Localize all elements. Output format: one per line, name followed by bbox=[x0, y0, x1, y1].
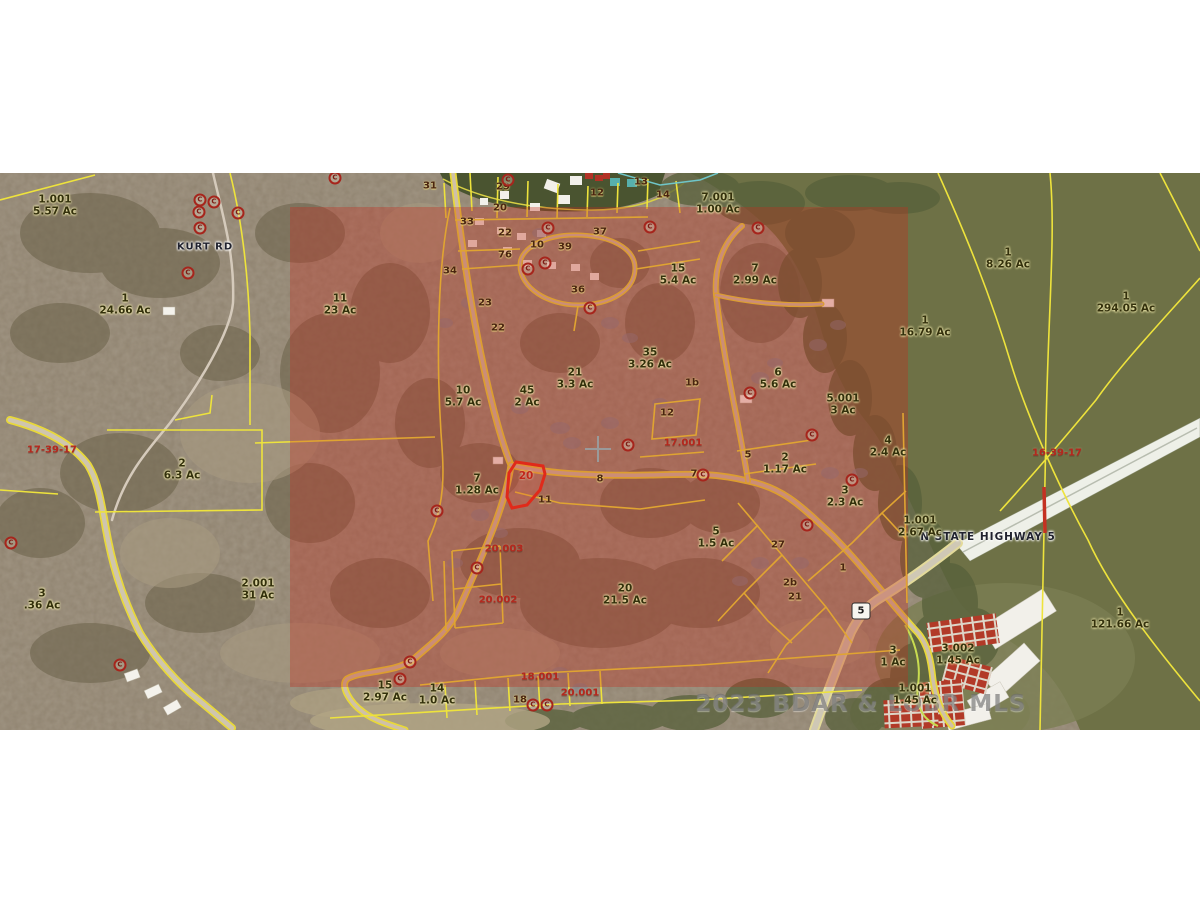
utility-marker-icon: C bbox=[539, 257, 552, 270]
parcel-label: 72.99 Ac bbox=[733, 264, 777, 287]
utility-marker-icon: C bbox=[744, 387, 757, 400]
parcel-label: 2.00131 Ac bbox=[241, 579, 274, 602]
parcel-label: 116.79 Ac bbox=[899, 316, 950, 339]
survey-label: 18.001 bbox=[521, 672, 560, 683]
mls-watermark: 2023 BDAR & LOBR MLS bbox=[696, 691, 1027, 717]
lot-number: 23 bbox=[478, 298, 492, 309]
survey-label: 20.002 bbox=[479, 595, 518, 606]
utility-marker-icon: C bbox=[232, 207, 245, 220]
parcel-label: 32.3 Ac bbox=[827, 486, 864, 509]
utility-marker-icon: C bbox=[194, 222, 207, 235]
parcel-label: 21.17 Ac bbox=[763, 453, 807, 476]
survey-label: 17-39-17 bbox=[27, 445, 77, 456]
parcel-label: 3.0021.45 Ac bbox=[936, 644, 980, 667]
utility-marker-icon: C bbox=[541, 699, 554, 712]
utility-marker-icon: C bbox=[114, 659, 127, 672]
utility-marker-icon: C bbox=[329, 173, 342, 185]
utility-marker-icon: C bbox=[644, 221, 657, 234]
lot-number: 8 bbox=[597, 474, 604, 485]
utility-marker-icon: C bbox=[584, 302, 597, 315]
lot-number: 13 bbox=[634, 177, 648, 188]
lot-number: 20 bbox=[493, 203, 507, 214]
utility-marker-icon: C bbox=[846, 474, 859, 487]
lot-number: 22 bbox=[491, 323, 505, 334]
parcel-label: 452 Ac bbox=[514, 386, 539, 409]
utility-marker-icon: C bbox=[471, 562, 484, 575]
lot-number: 31 bbox=[423, 181, 437, 192]
parcel-label: 2021.5 Ac bbox=[603, 584, 647, 607]
parcel-label: 65.6 Ac bbox=[760, 368, 797, 391]
utility-marker-icon: C bbox=[622, 439, 635, 452]
lot-number: 18 bbox=[513, 695, 527, 706]
utility-marker-icon: C bbox=[208, 196, 221, 209]
lot-number: 33 bbox=[460, 217, 474, 228]
lot-number: 21 bbox=[788, 592, 802, 603]
parcel-label: 1.0015.57 Ac bbox=[33, 195, 77, 218]
lot-number: 12 bbox=[660, 408, 674, 419]
parcel-label: 105.7 Ac bbox=[445, 386, 482, 409]
lot-number: 37 bbox=[593, 227, 607, 238]
utility-marker-icon: C bbox=[542, 222, 555, 235]
survey-label: 20.001 bbox=[561, 688, 600, 699]
utility-marker-icon: C bbox=[801, 519, 814, 532]
utility-marker-icon: C bbox=[752, 222, 765, 235]
parcel-label: 1121.66 Ac bbox=[1091, 608, 1150, 631]
parcel-label: 141.0 Ac bbox=[419, 684, 456, 707]
utility-marker-icon: C bbox=[502, 174, 515, 187]
utility-marker-icon: C bbox=[806, 429, 819, 442]
parcel-label: 5.0013 Ac bbox=[826, 394, 859, 417]
utility-marker-icon: C bbox=[697, 469, 710, 482]
parcel-label: 7.0011.00 Ac bbox=[696, 193, 740, 216]
map-label-layer: KURT RD N STATE HIGHWAY 5 5 2023 BDAR & … bbox=[0, 173, 1200, 730]
parcel-label: 26.3 Ac bbox=[164, 459, 201, 482]
utility-marker-icon: C bbox=[404, 656, 417, 669]
parcel-label: 1123 Ac bbox=[324, 294, 357, 317]
parcel-label: 1.0011.45 Ac bbox=[893, 684, 937, 707]
parcel-label: 18.26 Ac bbox=[986, 248, 1030, 271]
lot-number: 14 bbox=[656, 190, 670, 201]
utility-marker-icon: C bbox=[431, 505, 444, 518]
utility-marker-icon: C bbox=[522, 263, 535, 276]
utility-marker-icon: C bbox=[182, 267, 195, 280]
survey-label: 17.001 bbox=[664, 438, 703, 449]
parcel-label: 71.28 Ac bbox=[455, 474, 499, 497]
lot-number: 36 bbox=[571, 285, 585, 296]
parcel-label: 1.0012.67 Ac bbox=[898, 516, 942, 539]
utility-marker-icon: C bbox=[5, 537, 18, 550]
lot-number: 1 bbox=[840, 563, 847, 574]
lot-number: 11 bbox=[538, 495, 552, 506]
lot-number: 1b bbox=[685, 378, 699, 389]
utility-marker-icon: C bbox=[194, 194, 207, 207]
parcel-label: 3.36 Ac bbox=[24, 589, 61, 612]
lot-number: 22 bbox=[498, 228, 512, 239]
parcel-label: 42.4 Ac bbox=[870, 436, 907, 459]
lot-number: 39 bbox=[558, 242, 572, 253]
utility-marker-icon: C bbox=[193, 206, 206, 219]
lot-number: 27 bbox=[771, 540, 785, 551]
survey-label: 20.003 bbox=[485, 544, 524, 555]
lot-number: 2b bbox=[783, 578, 797, 589]
lot-number: 34 bbox=[443, 266, 457, 277]
parcel-label: 51.5 Ac bbox=[698, 527, 735, 550]
lot-number: 76 bbox=[498, 250, 512, 261]
highlighted-parcel-number: 20 bbox=[519, 470, 534, 482]
survey-label: 16-39-17 bbox=[1032, 448, 1082, 459]
kurt-rd-label: KURT RD bbox=[177, 242, 233, 253]
parcel-label: 124.66 Ac bbox=[99, 294, 150, 317]
parcel-label: 353.26 Ac bbox=[628, 348, 672, 371]
parcel-label: 155.4 Ac bbox=[660, 264, 697, 287]
parcel-label: 1294.05 Ac bbox=[1097, 292, 1156, 315]
utility-marker-icon: C bbox=[394, 673, 407, 686]
parcel-label: 213.3 Ac bbox=[557, 368, 594, 391]
utility-marker-icon: C bbox=[527, 699, 540, 712]
lot-number: 5 bbox=[745, 450, 752, 461]
lot-number: 12 bbox=[590, 188, 604, 199]
aerial-parcel-map[interactable]: KURT RD N STATE HIGHWAY 5 5 2023 BDAR & … bbox=[0, 173, 1200, 730]
parcel-label: 31 Ac bbox=[880, 646, 905, 669]
lot-number: 10 bbox=[530, 240, 544, 251]
highway-5-shield: 5 bbox=[852, 603, 871, 620]
map-crosshair bbox=[585, 436, 611, 462]
